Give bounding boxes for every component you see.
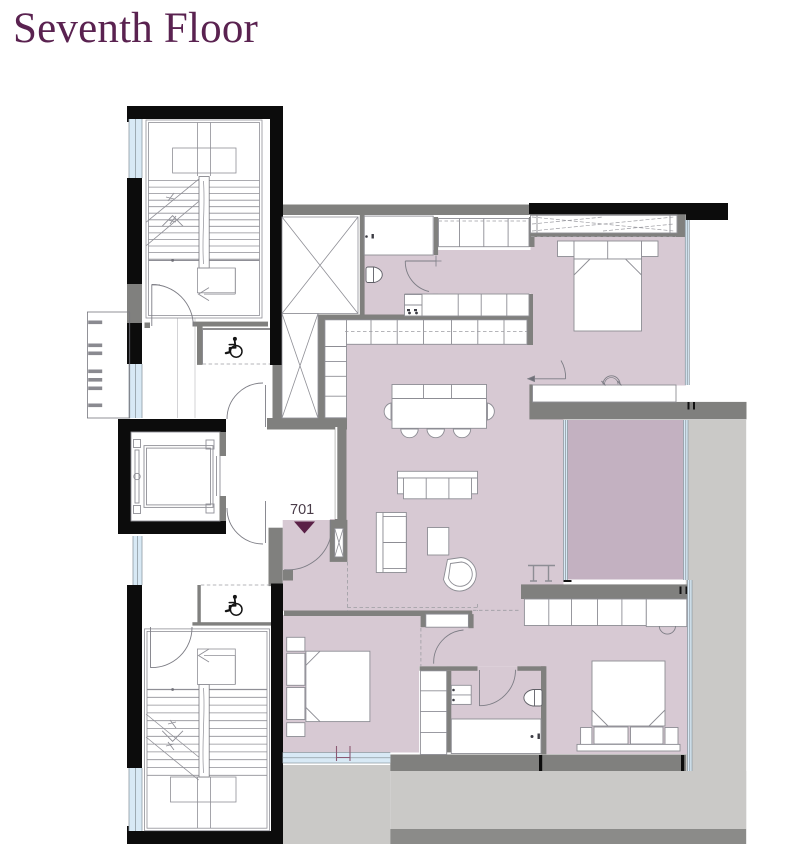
svg-text:701: 701 — [290, 502, 314, 518]
svg-text:Seventh Floor: Seventh Floor — [13, 5, 258, 52]
